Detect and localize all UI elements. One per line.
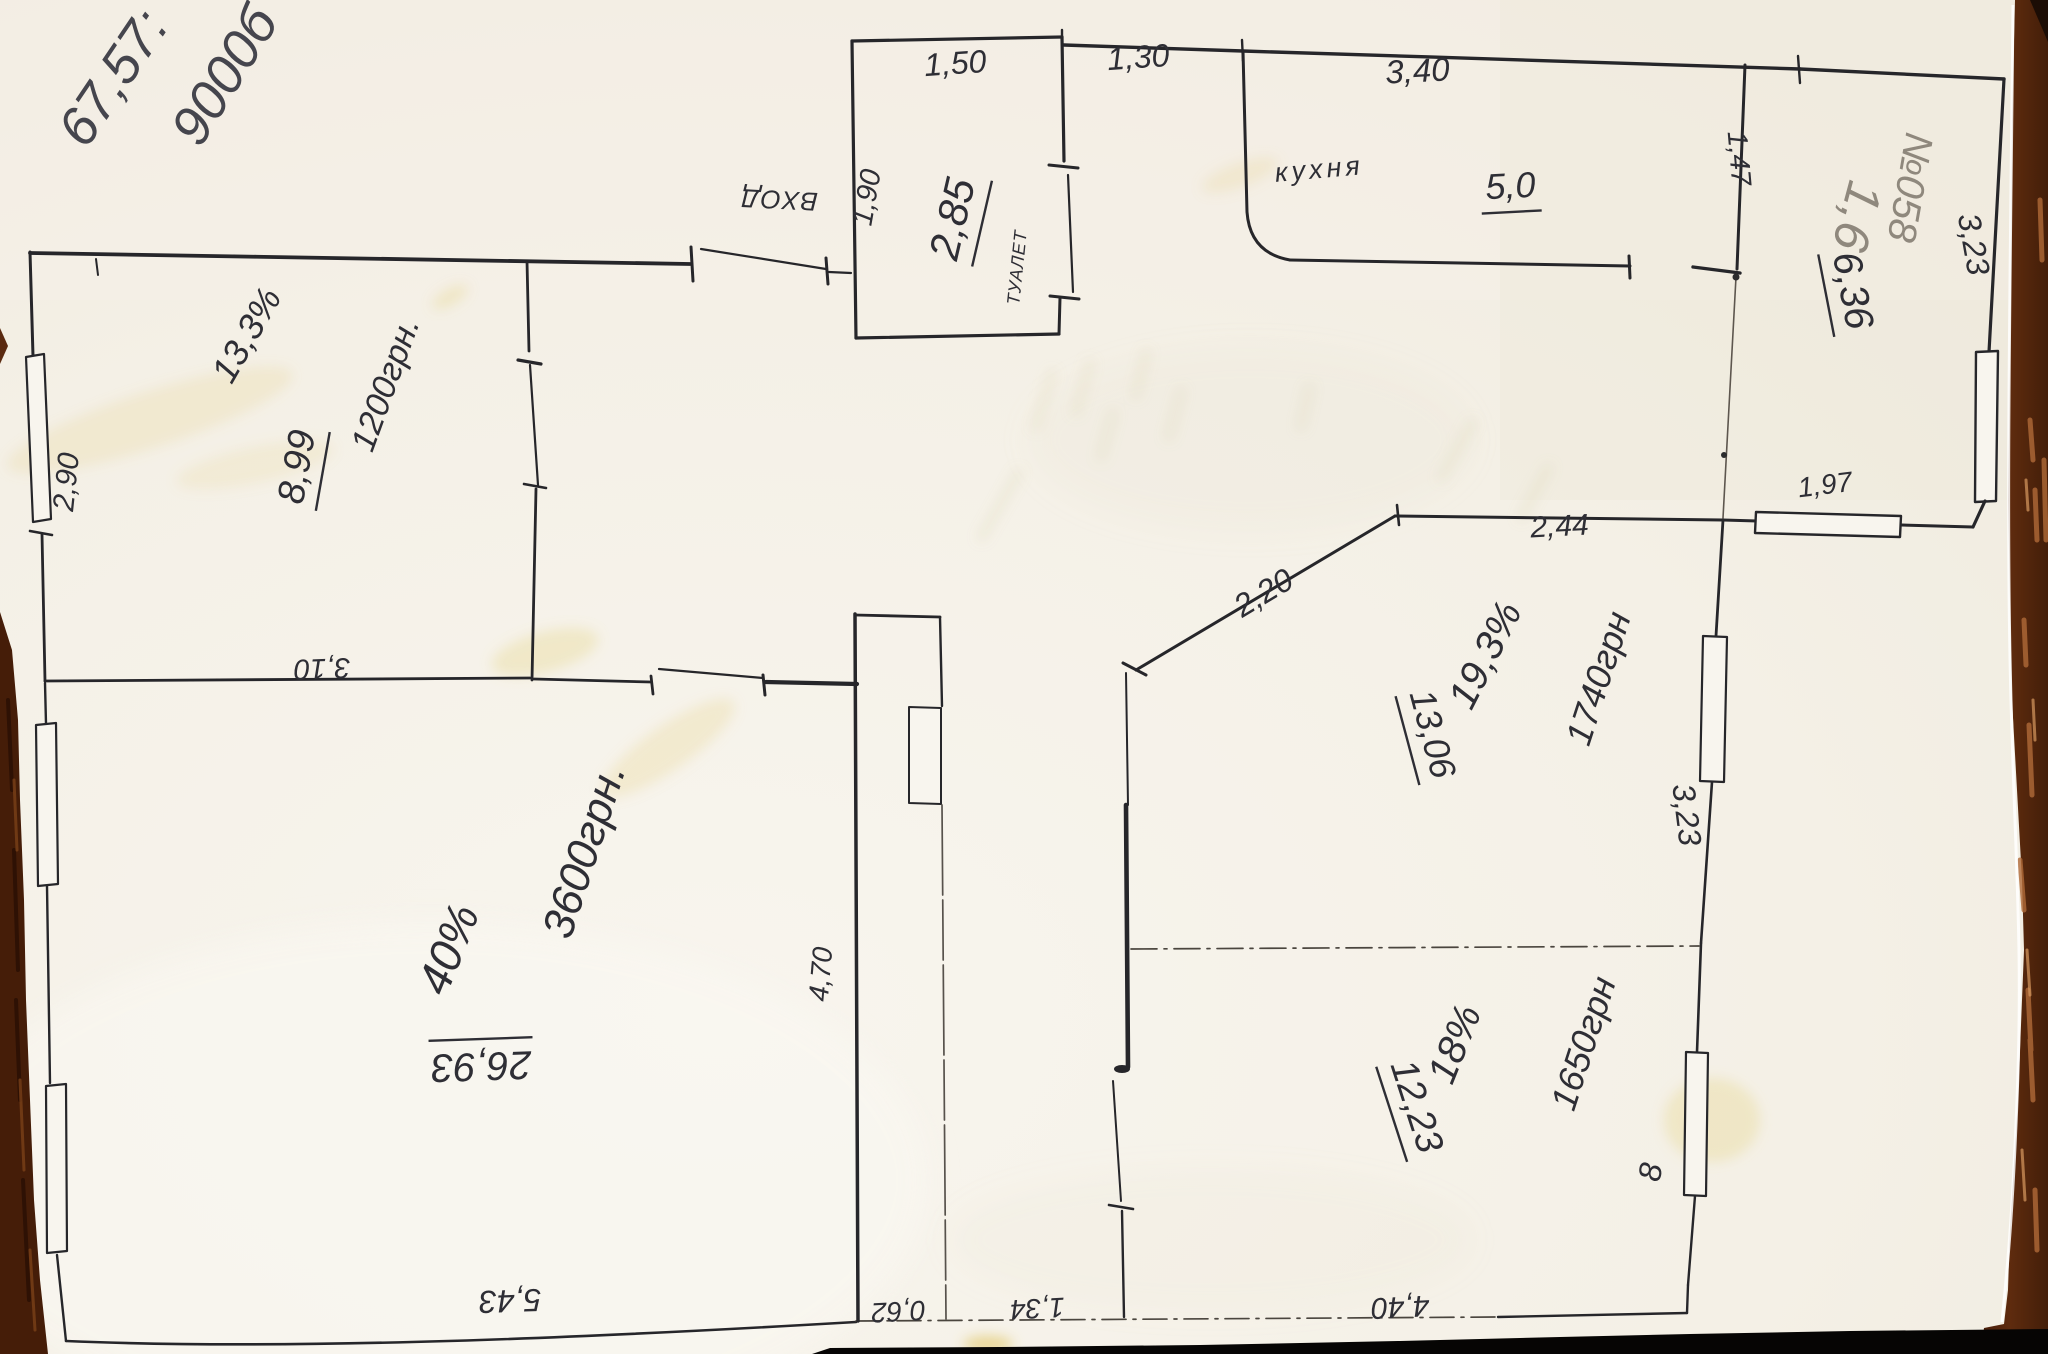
svg-text:2,44: 2,44 [1528, 509, 1589, 545]
svg-text:5,43: 5,43 [478, 1282, 542, 1320]
svg-text:5,0: 5,0 [1484, 164, 1536, 208]
svg-text:1,34: 1,34 [1009, 1292, 1065, 1326]
svg-text:3,40: 3,40 [1384, 50, 1451, 90]
svg-text:1,47: 1,47 [1722, 130, 1758, 188]
svg-text:ВХОД: ВХОД [739, 183, 819, 217]
svg-text:3,10: 3,10 [294, 651, 352, 685]
svg-text:2,90: 2,90 [47, 451, 86, 514]
svg-text:1,30: 1,30 [1106, 37, 1171, 77]
svg-text:4,70: 4,70 [803, 945, 839, 1002]
svg-text:1,50: 1,50 [923, 43, 988, 83]
svg-text:0,62: 0,62 [870, 1295, 926, 1329]
svg-text:4,40: 4,40 [1370, 1288, 1430, 1324]
svg-text:3,23: 3,23 [1665, 782, 1708, 848]
svg-text:26,93: 26,93 [431, 1042, 534, 1090]
